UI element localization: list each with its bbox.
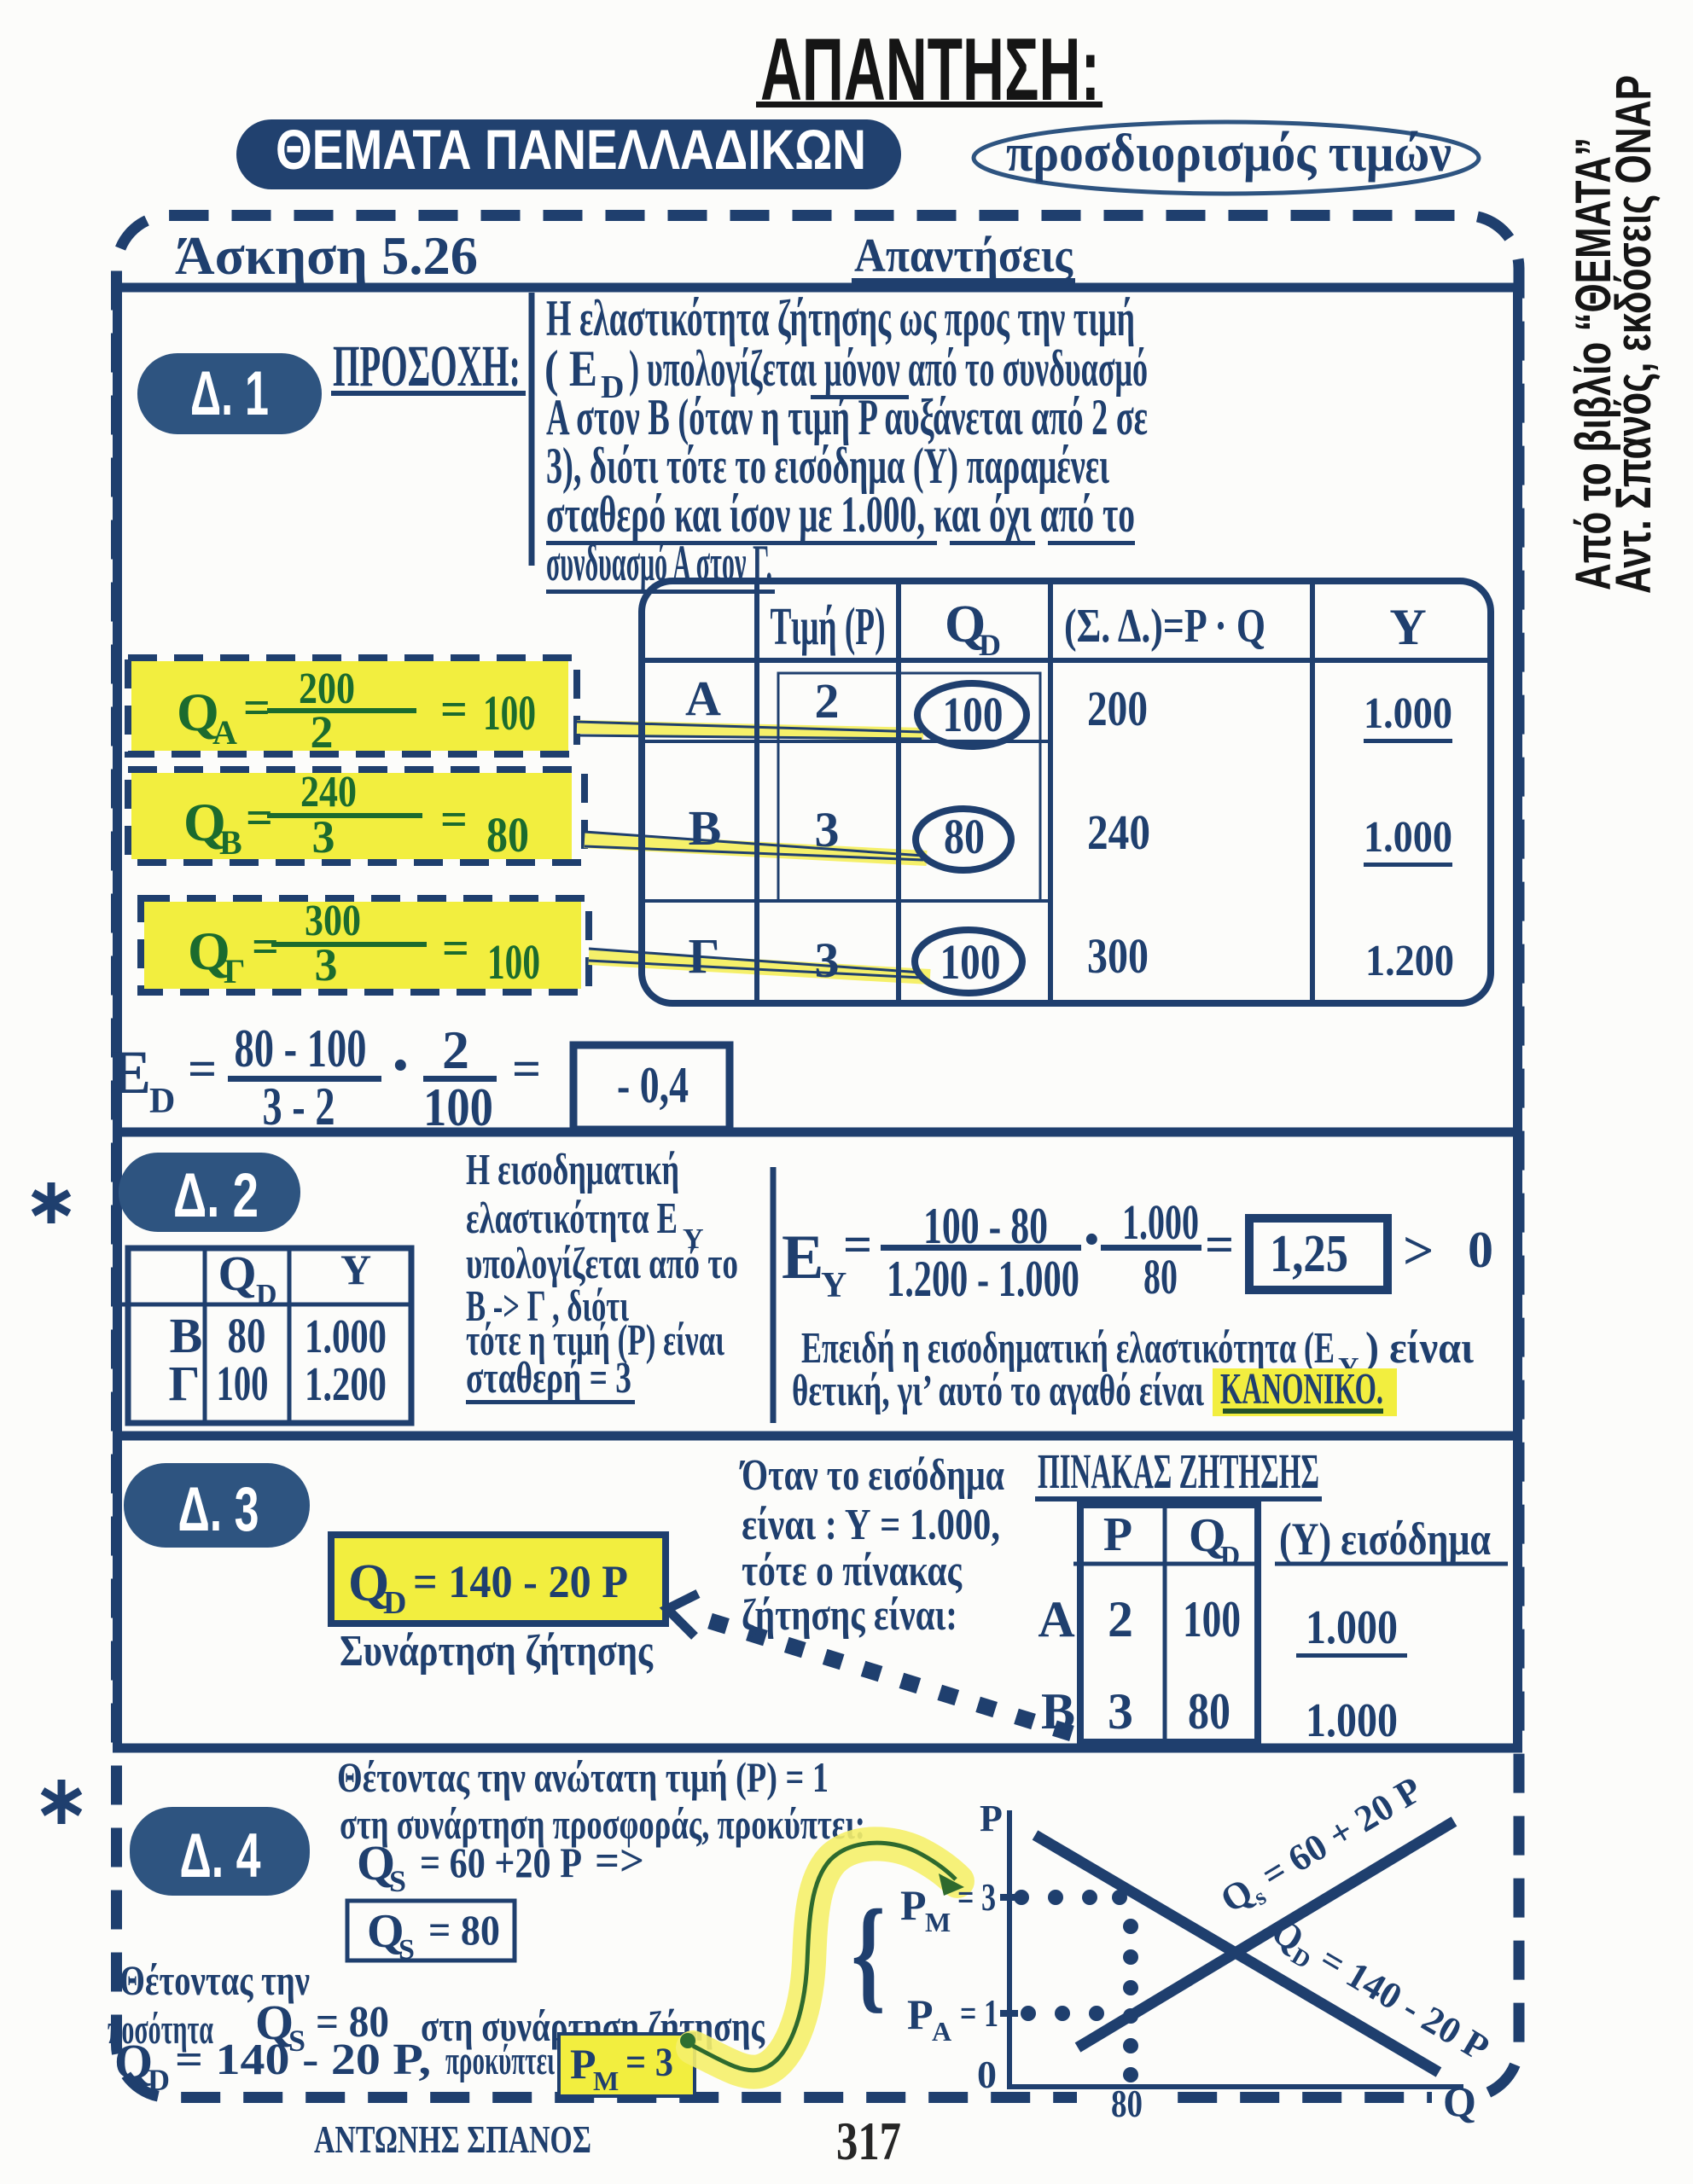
svg-text:B: B <box>219 823 242 862</box>
svg-text:Άσκηση 5.26: Άσκηση 5.26 <box>175 225 478 286</box>
svg-text:τότε ο πίνακας: τότε ο πίνακας <box>742 1547 963 1595</box>
svg-text:1,25: 1,25 <box>1270 1225 1348 1283</box>
svg-text:D: D <box>149 1082 175 1121</box>
svg-text:Q: Q <box>1443 2077 1476 2125</box>
svg-text:Β: Β <box>689 800 722 856</box>
svg-text:= 60 +20 P: = 60 +20 P <box>420 1838 582 1886</box>
svg-text:300: 300 <box>1087 928 1149 984</box>
svg-text:80 - 100: 80 - 100 <box>235 1018 367 1078</box>
svg-text:1.000: 1.000 <box>1306 1694 1398 1747</box>
svg-text:P: P <box>907 1990 934 2038</box>
svg-text:Δ. 3: Δ. 3 <box>178 1475 259 1544</box>
svg-text:E: E <box>110 1038 151 1107</box>
svg-text:{: { <box>852 1883 886 2024</box>
svg-text:= 1: = 1 <box>960 1991 998 2035</box>
svg-text:Απαντήσεις: Απαντήσεις <box>854 229 1073 282</box>
svg-text:80: 80 <box>944 809 985 864</box>
svg-text:1.200: 1.200 <box>305 1358 387 1411</box>
svg-text:>: > <box>1403 1220 1434 1281</box>
svg-text:Δ. 4: Δ. 4 <box>180 1821 261 1891</box>
svg-text:D: D <box>383 1585 406 1621</box>
svg-text:=: = <box>512 1041 541 1097</box>
svg-text:2: 2 <box>815 673 840 729</box>
svg-text:Αντ. Σπανός, εκδόσεις ΟΝΑΡ: Αντ. Σπανός, εκδόσεις ΟΝΑΡ <box>1606 75 1661 594</box>
svg-text:1.000: 1.000 <box>305 1310 387 1363</box>
svg-text:P: P <box>980 1798 1003 1839</box>
svg-text:A: A <box>932 2016 951 2047</box>
svg-text:3: 3 <box>315 939 338 990</box>
svg-text:ΚΑΝΟΝΙΚΟ.: ΚΑΝΟΝΙΚΟ. <box>1220 1365 1383 1414</box>
svg-text:100: 100 <box>943 687 1004 742</box>
svg-text:3: 3 <box>815 932 840 988</box>
svg-text:=: = <box>843 1217 872 1273</box>
svg-text:0: 0 <box>977 2053 997 2096</box>
svg-text:προκύπτει: προκύπτει <box>445 2038 555 2083</box>
svg-text:θετική, γι’ αυτό το αγαθό είνα: θετική, γι’ αυτό το αγαθό είναι <box>792 1367 1204 1415</box>
svg-text:= 3: = 3 <box>625 2040 673 2085</box>
svg-text:E: E <box>782 1223 823 1292</box>
svg-text:D: D <box>1220 1540 1240 1571</box>
svg-text:P: P <box>900 1881 927 1929</box>
svg-text:Γ: Γ <box>689 928 720 984</box>
svg-text:1.000: 1.000 <box>1122 1194 1199 1250</box>
svg-text:προσδιορισμός τιμών: προσδιορισμός τιμών <box>1006 125 1452 183</box>
svg-text:= 3: = 3 <box>957 1875 996 1919</box>
svg-text:Γ: Γ <box>224 952 245 990</box>
svg-text:(Υ) εισόδημα: (Υ) εισόδημα <box>1279 1513 1491 1565</box>
svg-text:1.200 - 1.000: 1.200 - 1.000 <box>887 1251 1079 1307</box>
svg-text:80: 80 <box>1143 1249 1178 1304</box>
svg-text:3 - 2: 3 - 2 <box>263 1076 335 1136</box>
svg-text:300: 300 <box>305 897 361 945</box>
svg-text:240: 240 <box>300 768 357 816</box>
svg-text:D: D <box>256 1279 277 1310</box>
svg-text:1.200: 1.200 <box>1365 937 1454 985</box>
svg-text:P: P <box>570 2040 596 2088</box>
svg-text:Α: Α <box>685 671 721 726</box>
svg-text:2: 2 <box>311 706 334 758</box>
svg-text:Β: Β <box>1041 1683 1075 1740</box>
svg-text:ΑΝΤΩΝΗΣ ΣΠΑΝΟΣ: ΑΝΤΩΝΗΣ ΣΠΑΝΟΣ <box>314 2117 591 2161</box>
svg-text:M: M <box>925 1907 951 1937</box>
svg-text:D: D <box>979 628 1001 662</box>
svg-text:σταθερή = 3: σταθερή = 3 <box>466 1354 631 1403</box>
svg-text:(Σ. Δ.)=P · Q: (Σ. Δ.)=P · Q <box>1064 600 1265 653</box>
svg-text:Θέτοντας την ανώτατη τιμή (P): Θέτοντας την ανώτατη τιμή (P) = 1 <box>337 1753 829 1801</box>
svg-text:·: · <box>1080 1202 1103 1277</box>
svg-text:Τιμή (P): Τιμή (P) <box>771 598 886 656</box>
svg-text:ΠΙΝΑΚΑΣ ΖΗΤΗΣΗΣ: ΠΙΝΑΚΑΣ ΖΗΤΗΣΗΣ <box>1038 1443 1319 1499</box>
svg-text:3: 3 <box>815 802 840 857</box>
svg-text:100: 100 <box>483 685 536 741</box>
svg-text:=: = <box>243 682 271 735</box>
svg-text:100: 100 <box>940 934 1001 990</box>
svg-text:=: = <box>440 793 468 846</box>
svg-text:ελαστικότητα Ε: ελαστικότητα Ε <box>466 1194 678 1243</box>
svg-text:Δ. 1: Δ. 1 <box>190 359 269 428</box>
svg-text:240: 240 <box>1087 804 1150 860</box>
svg-text:80: 80 <box>486 807 529 863</box>
svg-text:1.000: 1.000 <box>1306 1601 1398 1654</box>
svg-text:P: P <box>1103 1508 1132 1561</box>
svg-text:Α: Α <box>1038 1591 1074 1647</box>
svg-text:- 0,4: - 0,4 <box>617 1057 689 1113</box>
svg-text:2: 2 <box>1108 1591 1133 1647</box>
svg-text:2: 2 <box>442 1019 469 1080</box>
svg-text:= 140 - 20 P: = 140 - 20 P <box>413 1556 628 1607</box>
svg-text:S: S <box>389 1864 406 1898</box>
svg-text:200: 200 <box>1087 681 1148 736</box>
svg-text:Y: Y <box>1389 599 1426 655</box>
svg-text:3: 3 <box>312 811 335 863</box>
svg-text:υπολογίζεται από το: υπολογίζεται από το <box>466 1240 738 1288</box>
svg-text:= 140 - 20 P,: = 140 - 20 P, <box>175 2036 431 2084</box>
svg-text:είναι : Υ = 1.000,: είναι : Υ = 1.000, <box>742 1501 1000 1549</box>
svg-text:D: D <box>148 2063 170 2097</box>
svg-text:M: M <box>593 2065 619 2096</box>
svg-text:= 80: = 80 <box>428 1906 500 1954</box>
svg-text:Q: Q <box>218 1246 256 1301</box>
svg-text:Η εισοδηματική: Η εισοδηματική <box>466 1146 679 1194</box>
svg-text:317: 317 <box>836 2111 901 2171</box>
svg-text:1.000: 1.000 <box>1364 689 1452 738</box>
svg-text:Γ: Γ <box>169 1356 201 1411</box>
svg-text:Συνάρτηση ζήτησης: Συνάρτηση ζήτησης <box>340 1627 654 1676</box>
svg-text:·: · <box>389 1028 412 1103</box>
svg-text:100: 100 <box>423 1077 493 1137</box>
svg-text:80: 80 <box>1188 1683 1230 1740</box>
svg-text:ΠΡΟΣΟΧΗ:: ΠΡΟΣΟΧΗ: <box>333 334 521 398</box>
svg-text:ΘΕΜΑΤΑ ΠΑΝΕΛΛΑΔΙΚΩΝ: ΘΕΜΑΤΑ ΠΑΝΕΛΛΑΔΙΚΩΝ <box>276 118 866 181</box>
svg-text:100: 100 <box>1183 1591 1241 1647</box>
svg-text:Η ελαστικότητα ζήτησης ως προς: Η ελαστικότητα ζήτησης ως προς την τιμή <box>546 290 1135 346</box>
svg-text:=: = <box>440 683 468 736</box>
svg-text:A: A <box>212 713 237 752</box>
svg-text:0: 0 <box>1468 1222 1493 1278</box>
svg-text:S: S <box>399 1934 415 1966</box>
svg-text:=: = <box>1205 1217 1234 1273</box>
svg-text:100: 100 <box>217 1356 269 1411</box>
svg-text:ζήτησης είναι:: ζήτησης είναι: <box>742 1591 957 1640</box>
svg-text:80: 80 <box>1111 2082 1143 2125</box>
svg-text:100: 100 <box>487 934 540 990</box>
svg-text:Y: Y <box>340 1246 371 1293</box>
svg-text:=>: => <box>595 1837 644 1885</box>
svg-text:3: 3 <box>1108 1683 1133 1740</box>
svg-text:1.000: 1.000 <box>1364 813 1452 862</box>
svg-text:=: = <box>188 1041 217 1097</box>
svg-text:Δ. 2: Δ. 2 <box>173 1161 259 1230</box>
svg-text:Όταν το εισόδημα: Όταν το εισόδημα <box>739 1451 1004 1500</box>
svg-text:=: = <box>442 922 469 975</box>
